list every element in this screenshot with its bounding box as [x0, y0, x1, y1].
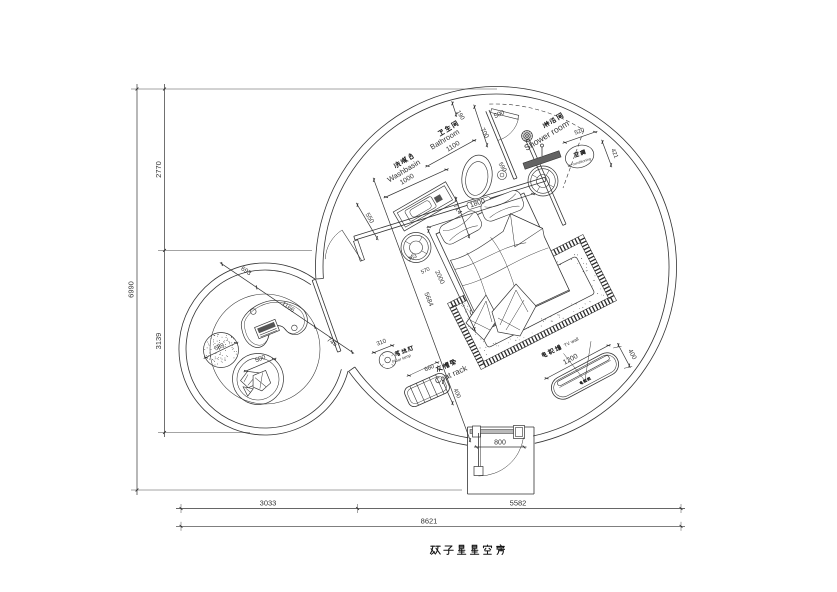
svg-text:2770: 2770 — [154, 161, 163, 178]
svg-text:6990: 6990 — [127, 281, 136, 298]
svg-text:800: 800 — [494, 440, 506, 447]
svg-text:3033: 3033 — [260, 499, 277, 508]
svg-text:5582: 5582 — [510, 499, 527, 508]
svg-text:3139: 3139 — [154, 333, 163, 350]
svg-text:8621: 8621 — [421, 516, 438, 525]
